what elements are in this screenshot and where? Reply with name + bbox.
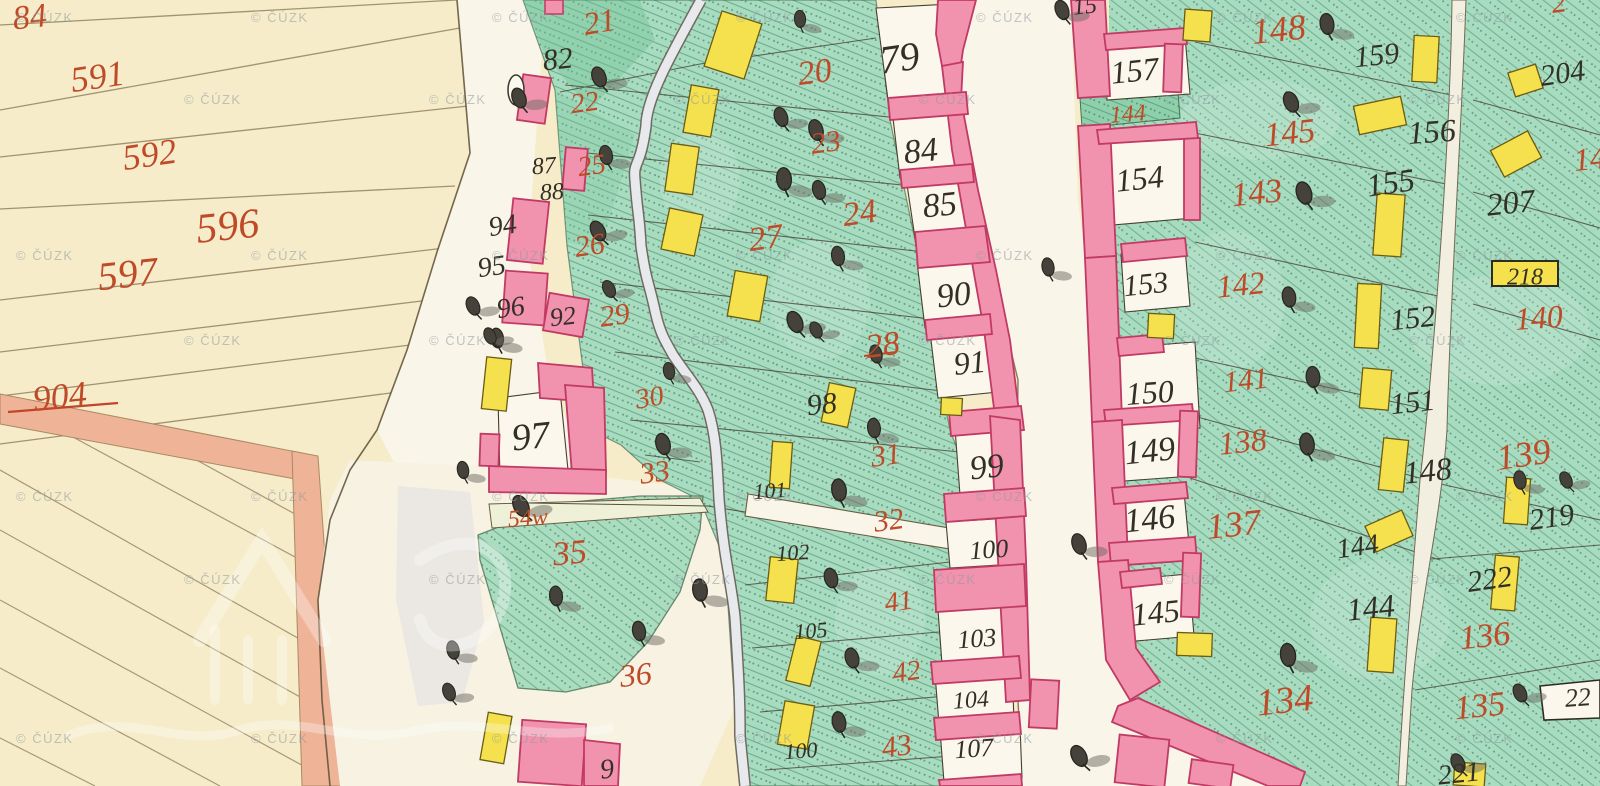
svg-text:25: 25 — [576, 149, 608, 184]
svg-text:218: 218 — [1507, 265, 1543, 291]
svg-text:© ČÚZK: © ČÚZK — [492, 489, 550, 504]
svg-text:42: 42 — [891, 655, 923, 690]
svg-text:© ČÚZK: © ČÚZK — [976, 248, 1034, 263]
svg-text:© ČÚZK: © ČÚZK — [976, 10, 1034, 25]
svg-text:© ČÚZK: © ČÚZK — [1456, 248, 1514, 263]
svg-text:85: 85 — [921, 185, 959, 225]
svg-text:79: 79 — [876, 33, 922, 83]
svg-text:© ČÚZK: © ČÚZK — [919, 572, 977, 587]
svg-text:26: 26 — [572, 227, 606, 264]
svg-text:© ČÚZK: © ČÚZK — [1164, 92, 1222, 107]
svg-text:© ČÚZK: © ČÚZK — [976, 489, 1034, 504]
svg-text:30: 30 — [632, 380, 666, 416]
svg-text:© ČÚZK: © ČÚZK — [736, 10, 794, 25]
svg-text:24: 24 — [840, 193, 879, 234]
svg-text:© ČÚZK: © ČÚZK — [1409, 333, 1467, 348]
svg-text:904: 904 — [31, 374, 89, 419]
svg-text:© ČÚZK: © ČÚZK — [1409, 92, 1467, 107]
svg-text:© ČÚZK: © ČÚZK — [16, 731, 74, 746]
svg-text:141: 141 — [1222, 362, 1270, 400]
svg-text:90: 90 — [935, 275, 973, 315]
svg-text:© ČÚZK: © ČÚZK — [1456, 10, 1514, 25]
svg-text:14: 14 — [1572, 139, 1600, 178]
svg-text:145: 145 — [1262, 112, 1317, 154]
svg-text:22: 22 — [569, 86, 601, 121]
svg-text:20: 20 — [795, 52, 834, 93]
svg-text:© ČÚZK: © ČÚZK — [1216, 248, 1274, 263]
svg-text:36: 36 — [617, 655, 654, 694]
svg-text:100: 100 — [968, 534, 1009, 566]
svg-text:© ČÚZK: © ČÚZK — [184, 572, 242, 587]
svg-text:© ČÚZK: © ČÚZK — [492, 248, 550, 263]
svg-text:23: 23 — [808, 124, 842, 161]
svg-text:© ČÚZK: © ČÚZK — [429, 333, 487, 348]
svg-text:41: 41 — [883, 585, 915, 620]
svg-text:99: 99 — [968, 447, 1006, 487]
svg-text:© ČÚZK: © ČÚZK — [1216, 731, 1274, 746]
svg-text:139: 139 — [1494, 431, 1553, 478]
svg-text:© ČÚZK: © ČÚZK — [736, 731, 794, 746]
svg-text:207: 207 — [1485, 182, 1538, 223]
svg-text:96: 96 — [495, 291, 527, 326]
svg-text:149: 149 — [1122, 430, 1177, 472]
svg-text:© ČÚZK: © ČÚZK — [976, 731, 1034, 746]
svg-text:© ČÚZK: © ČÚZK — [1164, 333, 1222, 348]
svg-text:94: 94 — [487, 209, 519, 244]
svg-text:146: 146 — [1122, 498, 1177, 540]
svg-text:159: 159 — [1353, 37, 1401, 75]
svg-text:157: 157 — [1109, 50, 1162, 91]
svg-text:98: 98 — [805, 386, 838, 422]
svg-text:87: 87 — [531, 153, 558, 181]
svg-text:© ČÚZK: © ČÚZK — [919, 333, 977, 348]
svg-text:221: 221 — [1436, 756, 1481, 786]
svg-text:© ČÚZK: © ČÚZK — [1456, 489, 1514, 504]
svg-text:103: 103 — [956, 623, 997, 655]
svg-text:22: 22 — [1564, 682, 1592, 713]
svg-text:148: 148 — [1402, 450, 1454, 491]
svg-text:© ČÚZK: © ČÚZK — [429, 572, 487, 587]
svg-text:© ČÚZK: © ČÚZK — [16, 10, 74, 25]
svg-text:© ČÚZK: © ČÚZK — [1164, 572, 1222, 587]
svg-text:© ČÚZK: © ČÚZK — [16, 248, 74, 263]
svg-text:134: 134 — [1254, 677, 1315, 725]
svg-text:91: 91 — [952, 343, 988, 382]
svg-text:© ČÚZK: © ČÚZK — [674, 92, 732, 107]
svg-text:33: 33 — [636, 454, 671, 491]
svg-text:152: 152 — [1389, 300, 1437, 338]
svg-text:15: 15 — [1072, 0, 1099, 21]
svg-text:102: 102 — [775, 539, 810, 566]
svg-text:104: 104 — [952, 686, 990, 714]
svg-text:153: 153 — [1122, 266, 1170, 304]
svg-text:137: 137 — [1205, 501, 1265, 547]
svg-text:© ČÚZK: © ČÚZK — [1456, 731, 1514, 746]
svg-text:© ČÚZK: © ČÚZK — [16, 489, 74, 504]
svg-text:© ČÚZK: © ČÚZK — [674, 333, 732, 348]
svg-text:© ČÚZK: © ČÚZK — [736, 248, 794, 263]
svg-text:© ČÚZK: © ČÚZK — [919, 92, 977, 107]
svg-text:© ČÚZK: © ČÚZK — [674, 572, 732, 587]
svg-text:32: 32 — [870, 502, 905, 539]
svg-text:143: 143 — [1229, 172, 1284, 214]
svg-text:151: 151 — [1389, 384, 1437, 422]
svg-text:31: 31 — [867, 437, 902, 474]
svg-text:© ČÚZK: © ČÚZK — [251, 10, 309, 25]
svg-text:© ČÚZK: © ČÚZK — [492, 731, 550, 746]
svg-text:156: 156 — [1407, 112, 1457, 151]
svg-text:35: 35 — [550, 533, 589, 573]
svg-text:© ČÚZK: © ČÚZK — [1216, 489, 1274, 504]
svg-text:© ČÚZK: © ČÚZK — [1409, 572, 1467, 587]
svg-text:© ČÚZK: © ČÚZK — [251, 489, 309, 504]
svg-text:21: 21 — [580, 1, 618, 42]
svg-text:92: 92 — [548, 301, 577, 333]
svg-text:84: 84 — [902, 131, 940, 171]
svg-text:142: 142 — [1215, 264, 1267, 305]
svg-text:© ČÚZK: © ČÚZK — [251, 731, 309, 746]
svg-text:135: 135 — [1452, 685, 1507, 727]
svg-text:138: 138 — [1217, 421, 1269, 462]
svg-text:© ČÚZK: © ČÚZK — [184, 333, 242, 348]
svg-text:219: 219 — [1527, 498, 1576, 537]
svg-text:105: 105 — [793, 617, 828, 644]
svg-text:28: 28 — [863, 325, 902, 366]
svg-text:155: 155 — [1364, 161, 1417, 203]
svg-text:82: 82 — [541, 41, 574, 77]
svg-text:97: 97 — [510, 414, 554, 460]
svg-text:597: 597 — [95, 248, 161, 299]
svg-text:© ČÚZK: © ČÚZK — [251, 248, 309, 263]
svg-text:596: 596 — [194, 200, 261, 252]
svg-text:29: 29 — [597, 297, 631, 334]
svg-text:591: 591 — [68, 53, 127, 100]
svg-text:222: 222 — [1465, 560, 1514, 599]
svg-text:© ČÚZK: © ČÚZK — [492, 10, 550, 25]
svg-text:144: 144 — [1335, 529, 1381, 566]
svg-text:204: 204 — [1538, 54, 1587, 93]
svg-text:© ČÚZK: © ČÚZK — [1216, 10, 1274, 25]
svg-text:88: 88 — [539, 179, 565, 207]
svg-text:150: 150 — [1125, 373, 1175, 412]
svg-text:144: 144 — [1345, 587, 1397, 628]
svg-text:136: 136 — [1457, 615, 1512, 657]
svg-text:145: 145 — [1130, 592, 1182, 633]
svg-text:© ČÚZK: © ČÚZK — [184, 92, 242, 107]
svg-text:43: 43 — [879, 728, 913, 765]
svg-text:592: 592 — [120, 131, 179, 178]
svg-text:54w: 54w — [507, 504, 549, 533]
svg-text:© ČÚZK: © ČÚZK — [429, 92, 487, 107]
svg-text:144: 144 — [1109, 100, 1147, 128]
svg-text:154: 154 — [1114, 158, 1166, 199]
svg-text:© ČÚZK: © ČÚZK — [736, 489, 794, 504]
svg-text:140: 140 — [1514, 298, 1564, 337]
